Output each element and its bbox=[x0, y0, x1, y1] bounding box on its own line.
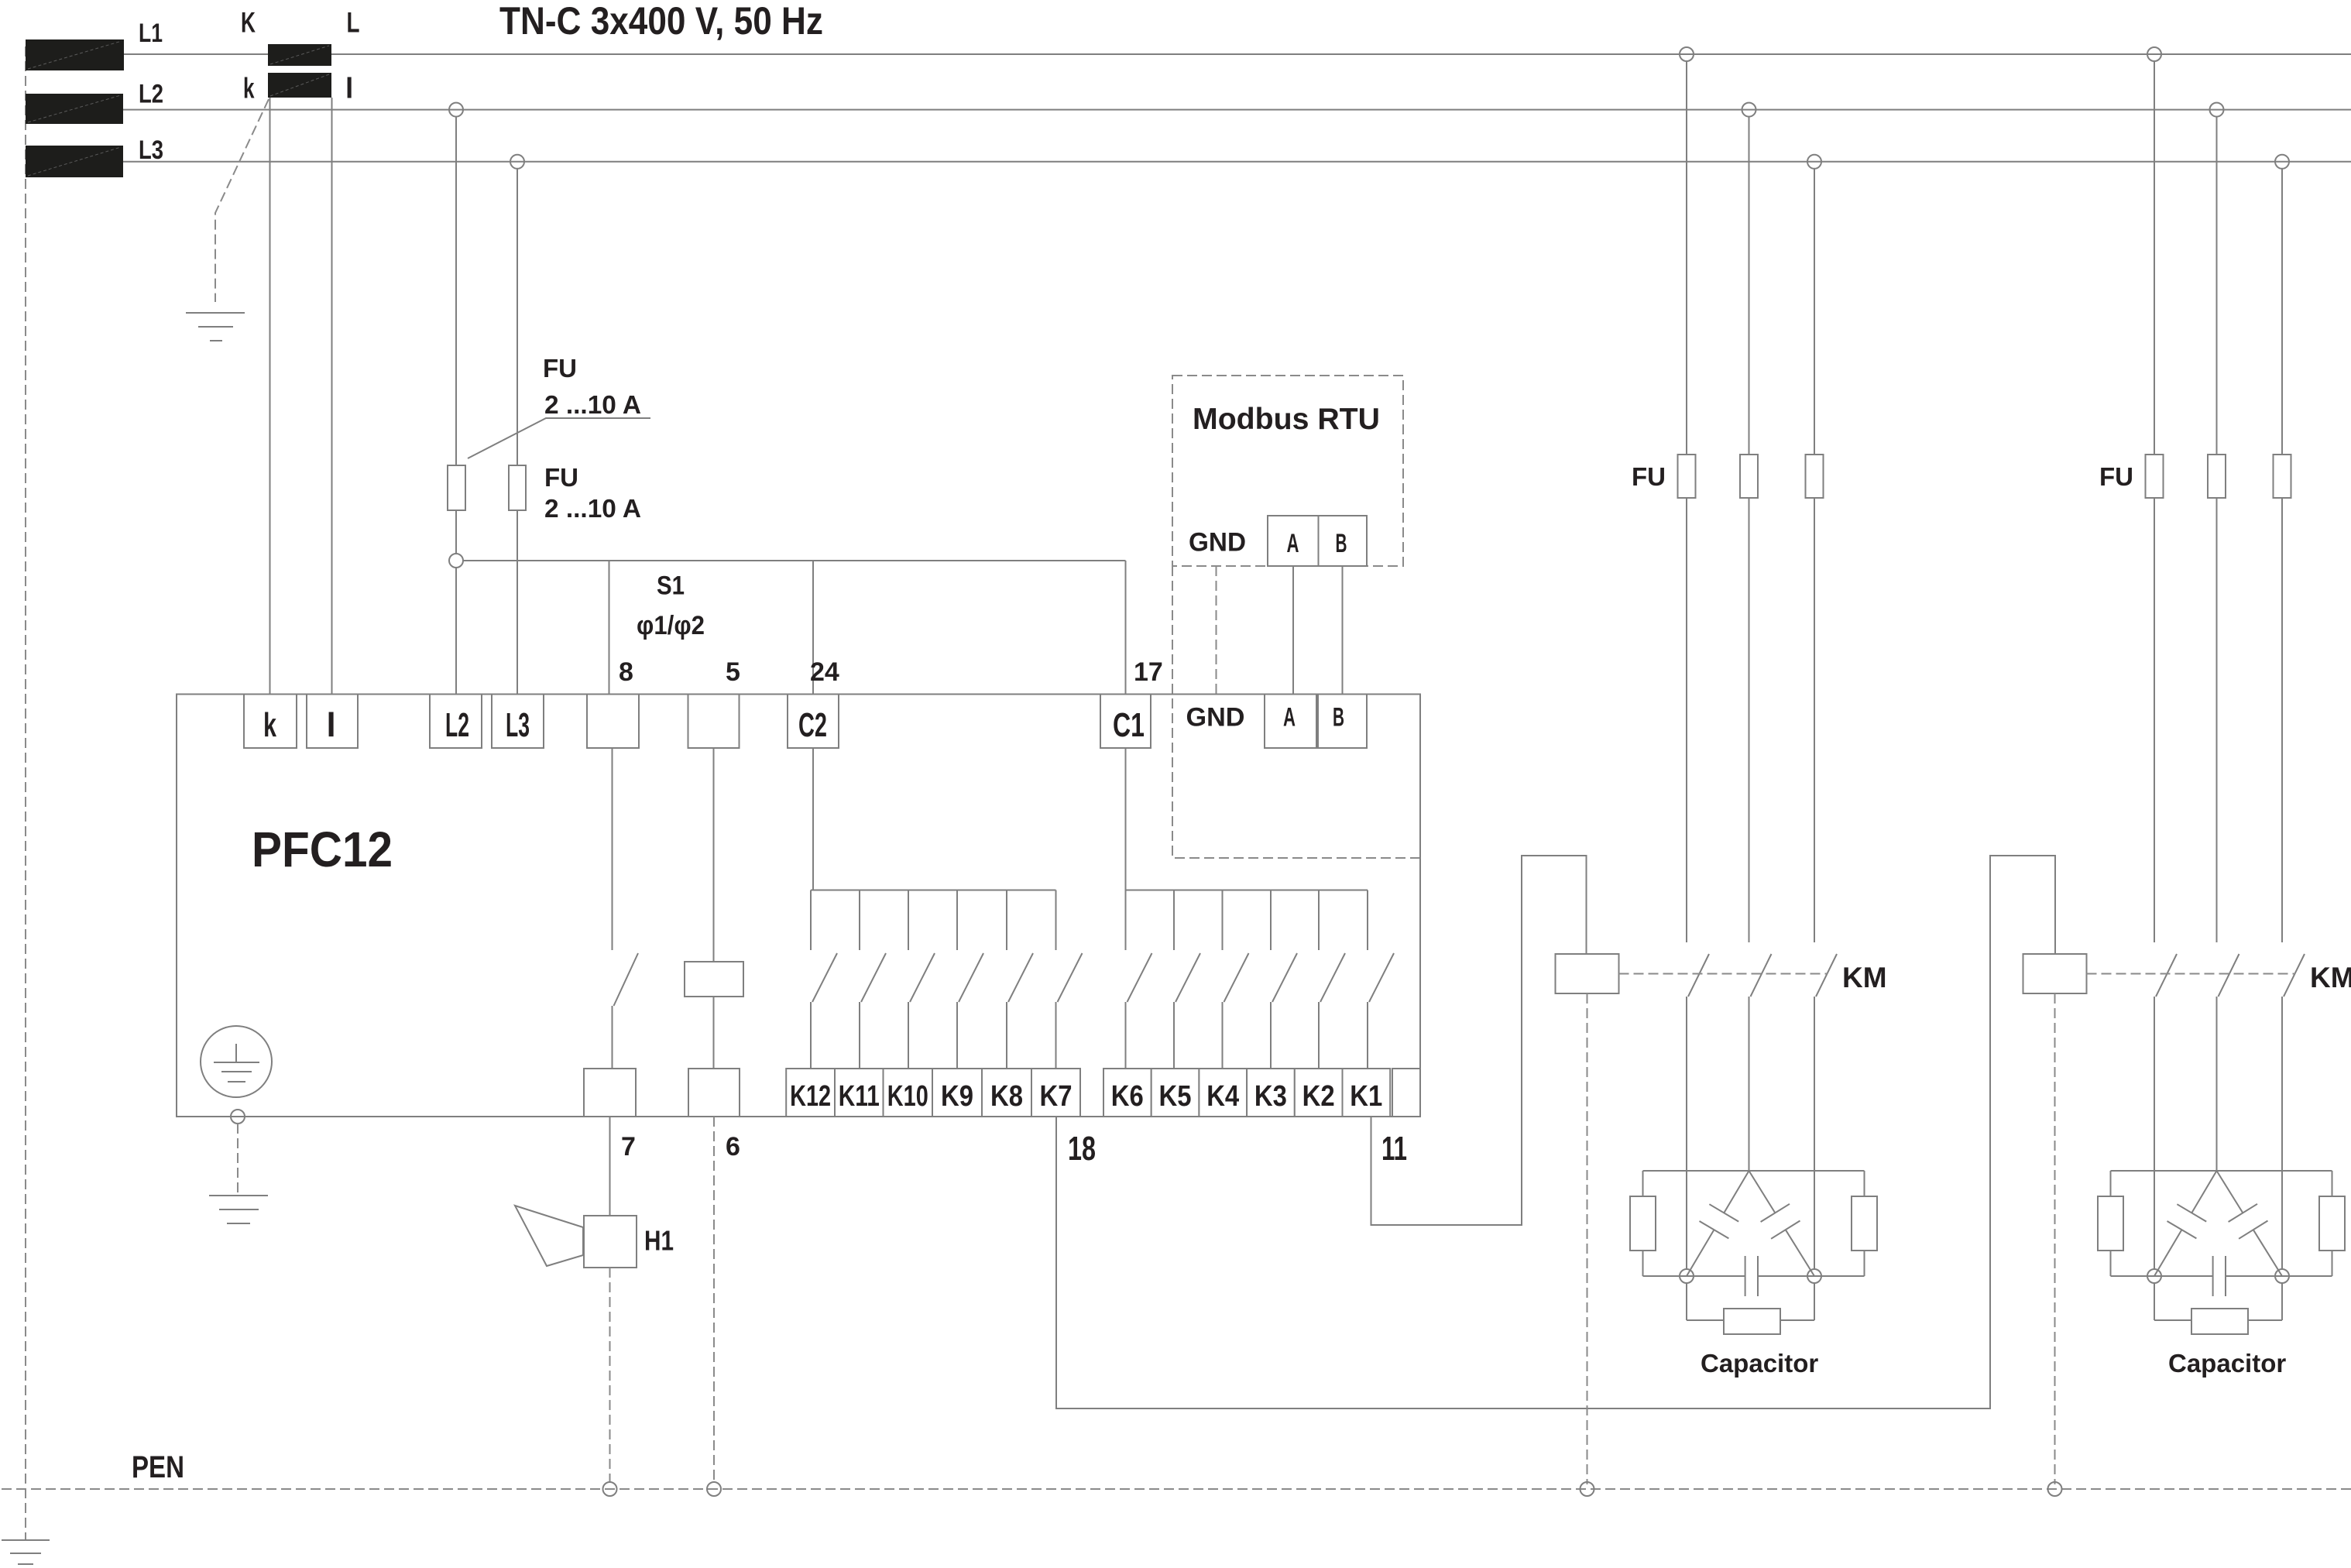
svg-text:KM: KM bbox=[2310, 962, 2351, 993]
svg-text:Capacitor: Capacitor bbox=[2168, 1349, 2286, 1378]
svg-text:K12: K12 bbox=[790, 1080, 831, 1113]
svg-text:GND: GND bbox=[1186, 703, 1245, 733]
svg-text:PEN: PEN bbox=[132, 1450, 184, 1484]
svg-text:GND: GND bbox=[1189, 528, 1246, 558]
svg-text:K4: K4 bbox=[1206, 1080, 1239, 1113]
svg-text:B: B bbox=[1333, 703, 1344, 733]
svg-text:L: L bbox=[347, 7, 360, 39]
svg-text:K7: K7 bbox=[1040, 1080, 1073, 1113]
svg-text:C1: C1 bbox=[1113, 706, 1145, 744]
svg-text:k: k bbox=[243, 73, 255, 105]
svg-text:24: 24 bbox=[810, 657, 839, 687]
svg-text:K1: K1 bbox=[1350, 1080, 1382, 1113]
svg-text:17: 17 bbox=[1134, 657, 1163, 687]
svg-text:K: K bbox=[241, 7, 256, 39]
svg-text:FU: FU bbox=[1632, 462, 1666, 491]
svg-text:K2: K2 bbox=[1302, 1080, 1335, 1113]
svg-text:L1: L1 bbox=[139, 19, 163, 48]
svg-text:L2: L2 bbox=[139, 80, 163, 109]
svg-text:FU: FU bbox=[543, 354, 577, 383]
svg-text:18: 18 bbox=[1068, 1130, 1096, 1168]
svg-text:L3: L3 bbox=[506, 706, 530, 744]
svg-text:K9: K9 bbox=[941, 1080, 973, 1113]
svg-text:K8: K8 bbox=[990, 1080, 1023, 1113]
svg-text:C2: C2 bbox=[798, 706, 827, 744]
svg-text:K11: K11 bbox=[839, 1080, 880, 1113]
svg-text:TN-C 3x400 V, 50 Hz: TN-C 3x400 V, 50 Hz bbox=[499, 0, 823, 43]
svg-text:2 ...10 A: 2 ...10 A bbox=[544, 494, 641, 523]
svg-text:A: A bbox=[1287, 529, 1299, 558]
svg-text:FU: FU bbox=[2099, 462, 2133, 491]
svg-text:7: 7 bbox=[621, 1132, 636, 1161]
svg-text:2 ...10 A: 2 ...10 A bbox=[544, 390, 641, 419]
svg-text:PFC12: PFC12 bbox=[252, 822, 393, 877]
svg-text:FU: FU bbox=[544, 463, 578, 492]
svg-text:11: 11 bbox=[1381, 1130, 1407, 1168]
svg-text:5: 5 bbox=[726, 657, 740, 687]
svg-text:KM: KM bbox=[1842, 962, 1887, 993]
svg-text:A: A bbox=[1283, 703, 1296, 733]
svg-text:S1: S1 bbox=[657, 571, 685, 601]
svg-text:H1: H1 bbox=[644, 1225, 674, 1257]
svg-text:φ1/φ2: φ1/φ2 bbox=[637, 611, 705, 640]
svg-text:l: l bbox=[345, 73, 353, 105]
svg-text:K6: K6 bbox=[1111, 1080, 1144, 1113]
svg-text:K10: K10 bbox=[887, 1080, 928, 1113]
svg-text:k: k bbox=[263, 706, 276, 744]
svg-text:Capacitor: Capacitor bbox=[1701, 1349, 1818, 1378]
svg-text:Modbus RTU: Modbus RTU bbox=[1193, 403, 1380, 436]
svg-text:l: l bbox=[327, 706, 336, 744]
svg-text:K5: K5 bbox=[1159, 1080, 1192, 1113]
svg-text:L3: L3 bbox=[139, 136, 163, 165]
svg-text:K3: K3 bbox=[1254, 1080, 1287, 1113]
svg-text:6: 6 bbox=[726, 1132, 740, 1161]
svg-text:8: 8 bbox=[619, 657, 633, 687]
svg-text:L2: L2 bbox=[445, 706, 469, 744]
svg-text:B: B bbox=[1336, 529, 1347, 558]
